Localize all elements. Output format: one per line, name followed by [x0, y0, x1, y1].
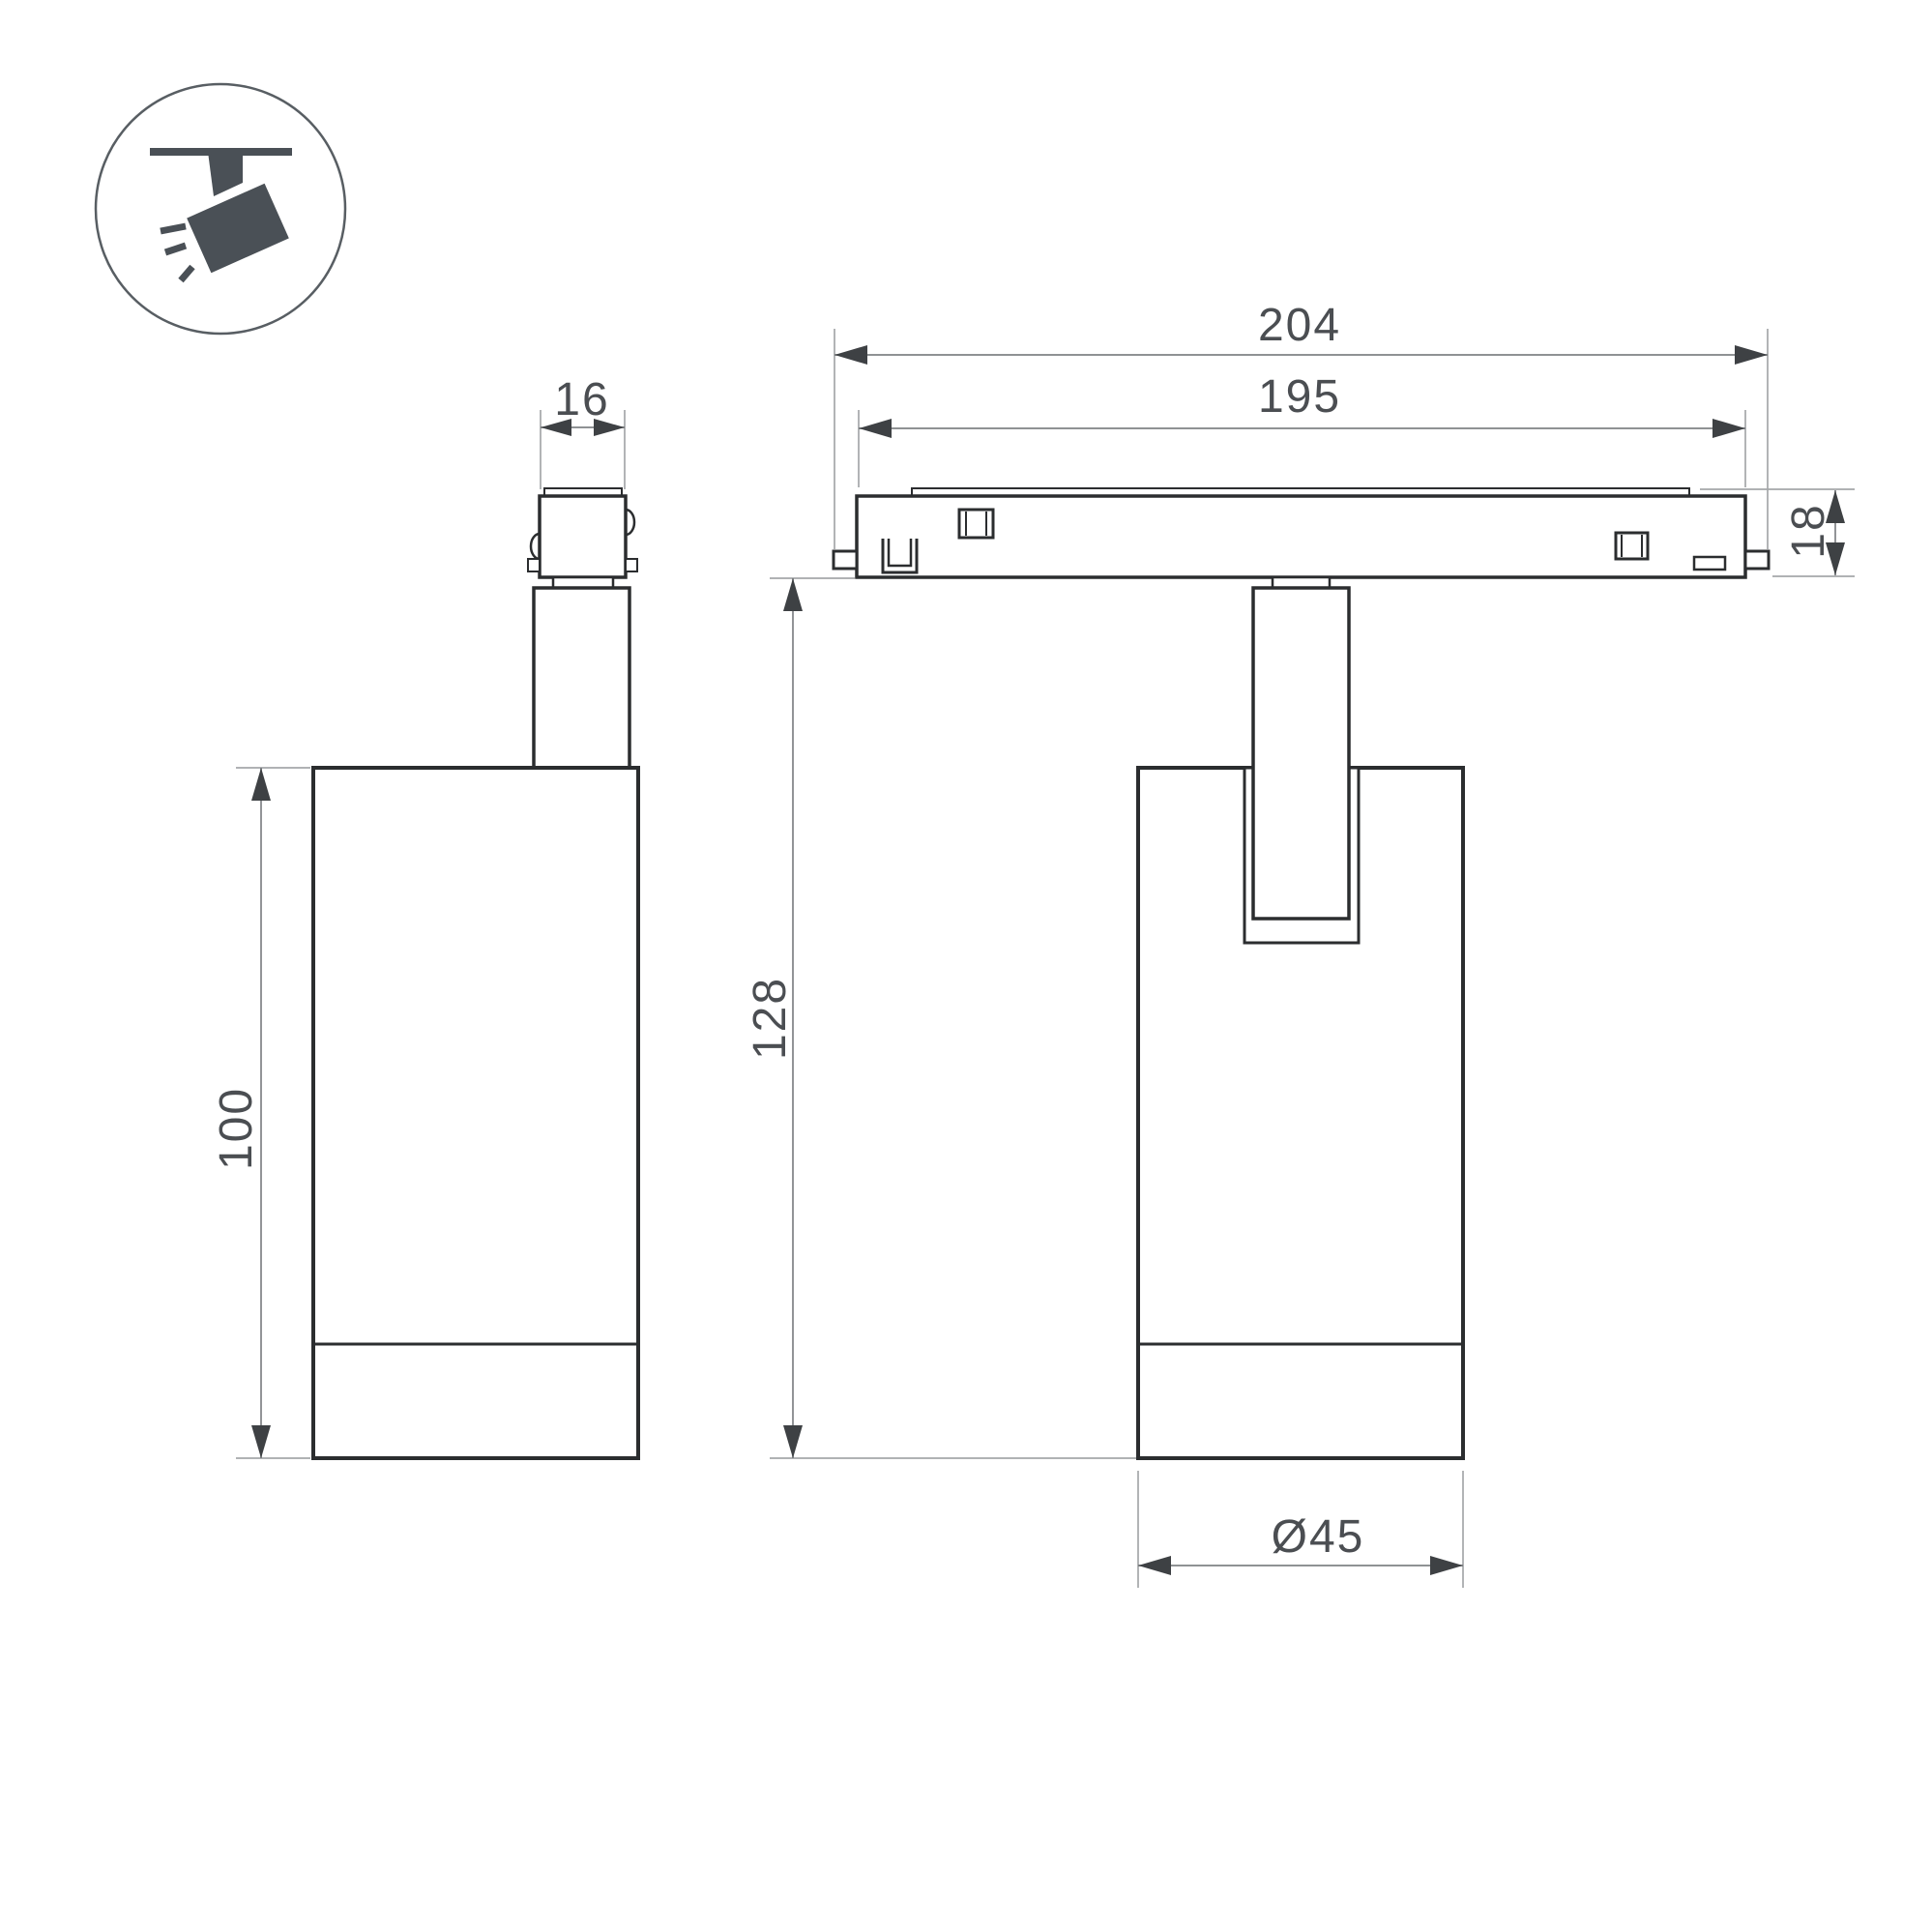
track-contact-block-left [959, 510, 993, 538]
dimension-body-diameter: Ø45 [1138, 1471, 1463, 1588]
dimension-label-128: 128 [745, 977, 796, 1060]
track-end-tab-right [1745, 551, 1769, 569]
dimension-label-204: 204 [1258, 300, 1341, 351]
dimension-label-16: 16 [554, 374, 609, 425]
track-slot-detail [1694, 557, 1725, 570]
dimension-body-height: 100 [211, 768, 310, 1458]
technical-drawing-page: 16 204 195 18 [0, 0, 1932, 1932]
track-contact-block-right [1616, 533, 1648, 559]
adapter-block [540, 496, 626, 577]
track-end-tab-left [834, 551, 857, 569]
side-stem [534, 588, 629, 768]
front-view [834, 488, 1769, 1458]
dimension-track-inner-length: 195 [859, 371, 1745, 487]
side-body [313, 768, 638, 1458]
adapter-hook-left [528, 559, 540, 571]
dimension-adapter-width: 16 [541, 374, 625, 489]
side-view [313, 488, 638, 1458]
dimension-label-18: 18 [1783, 503, 1834, 558]
dimension-label-195: 195 [1258, 371, 1341, 423]
track-spotlight-icon [96, 84, 345, 334]
adapter-hook-right [626, 559, 637, 571]
front-stem [1253, 588, 1349, 919]
dimension-suspension-height: 128 [745, 578, 1136, 1458]
dimension-label-100: 100 [211, 1087, 262, 1170]
dimension-label-d45: Ø45 [1272, 1511, 1365, 1563]
